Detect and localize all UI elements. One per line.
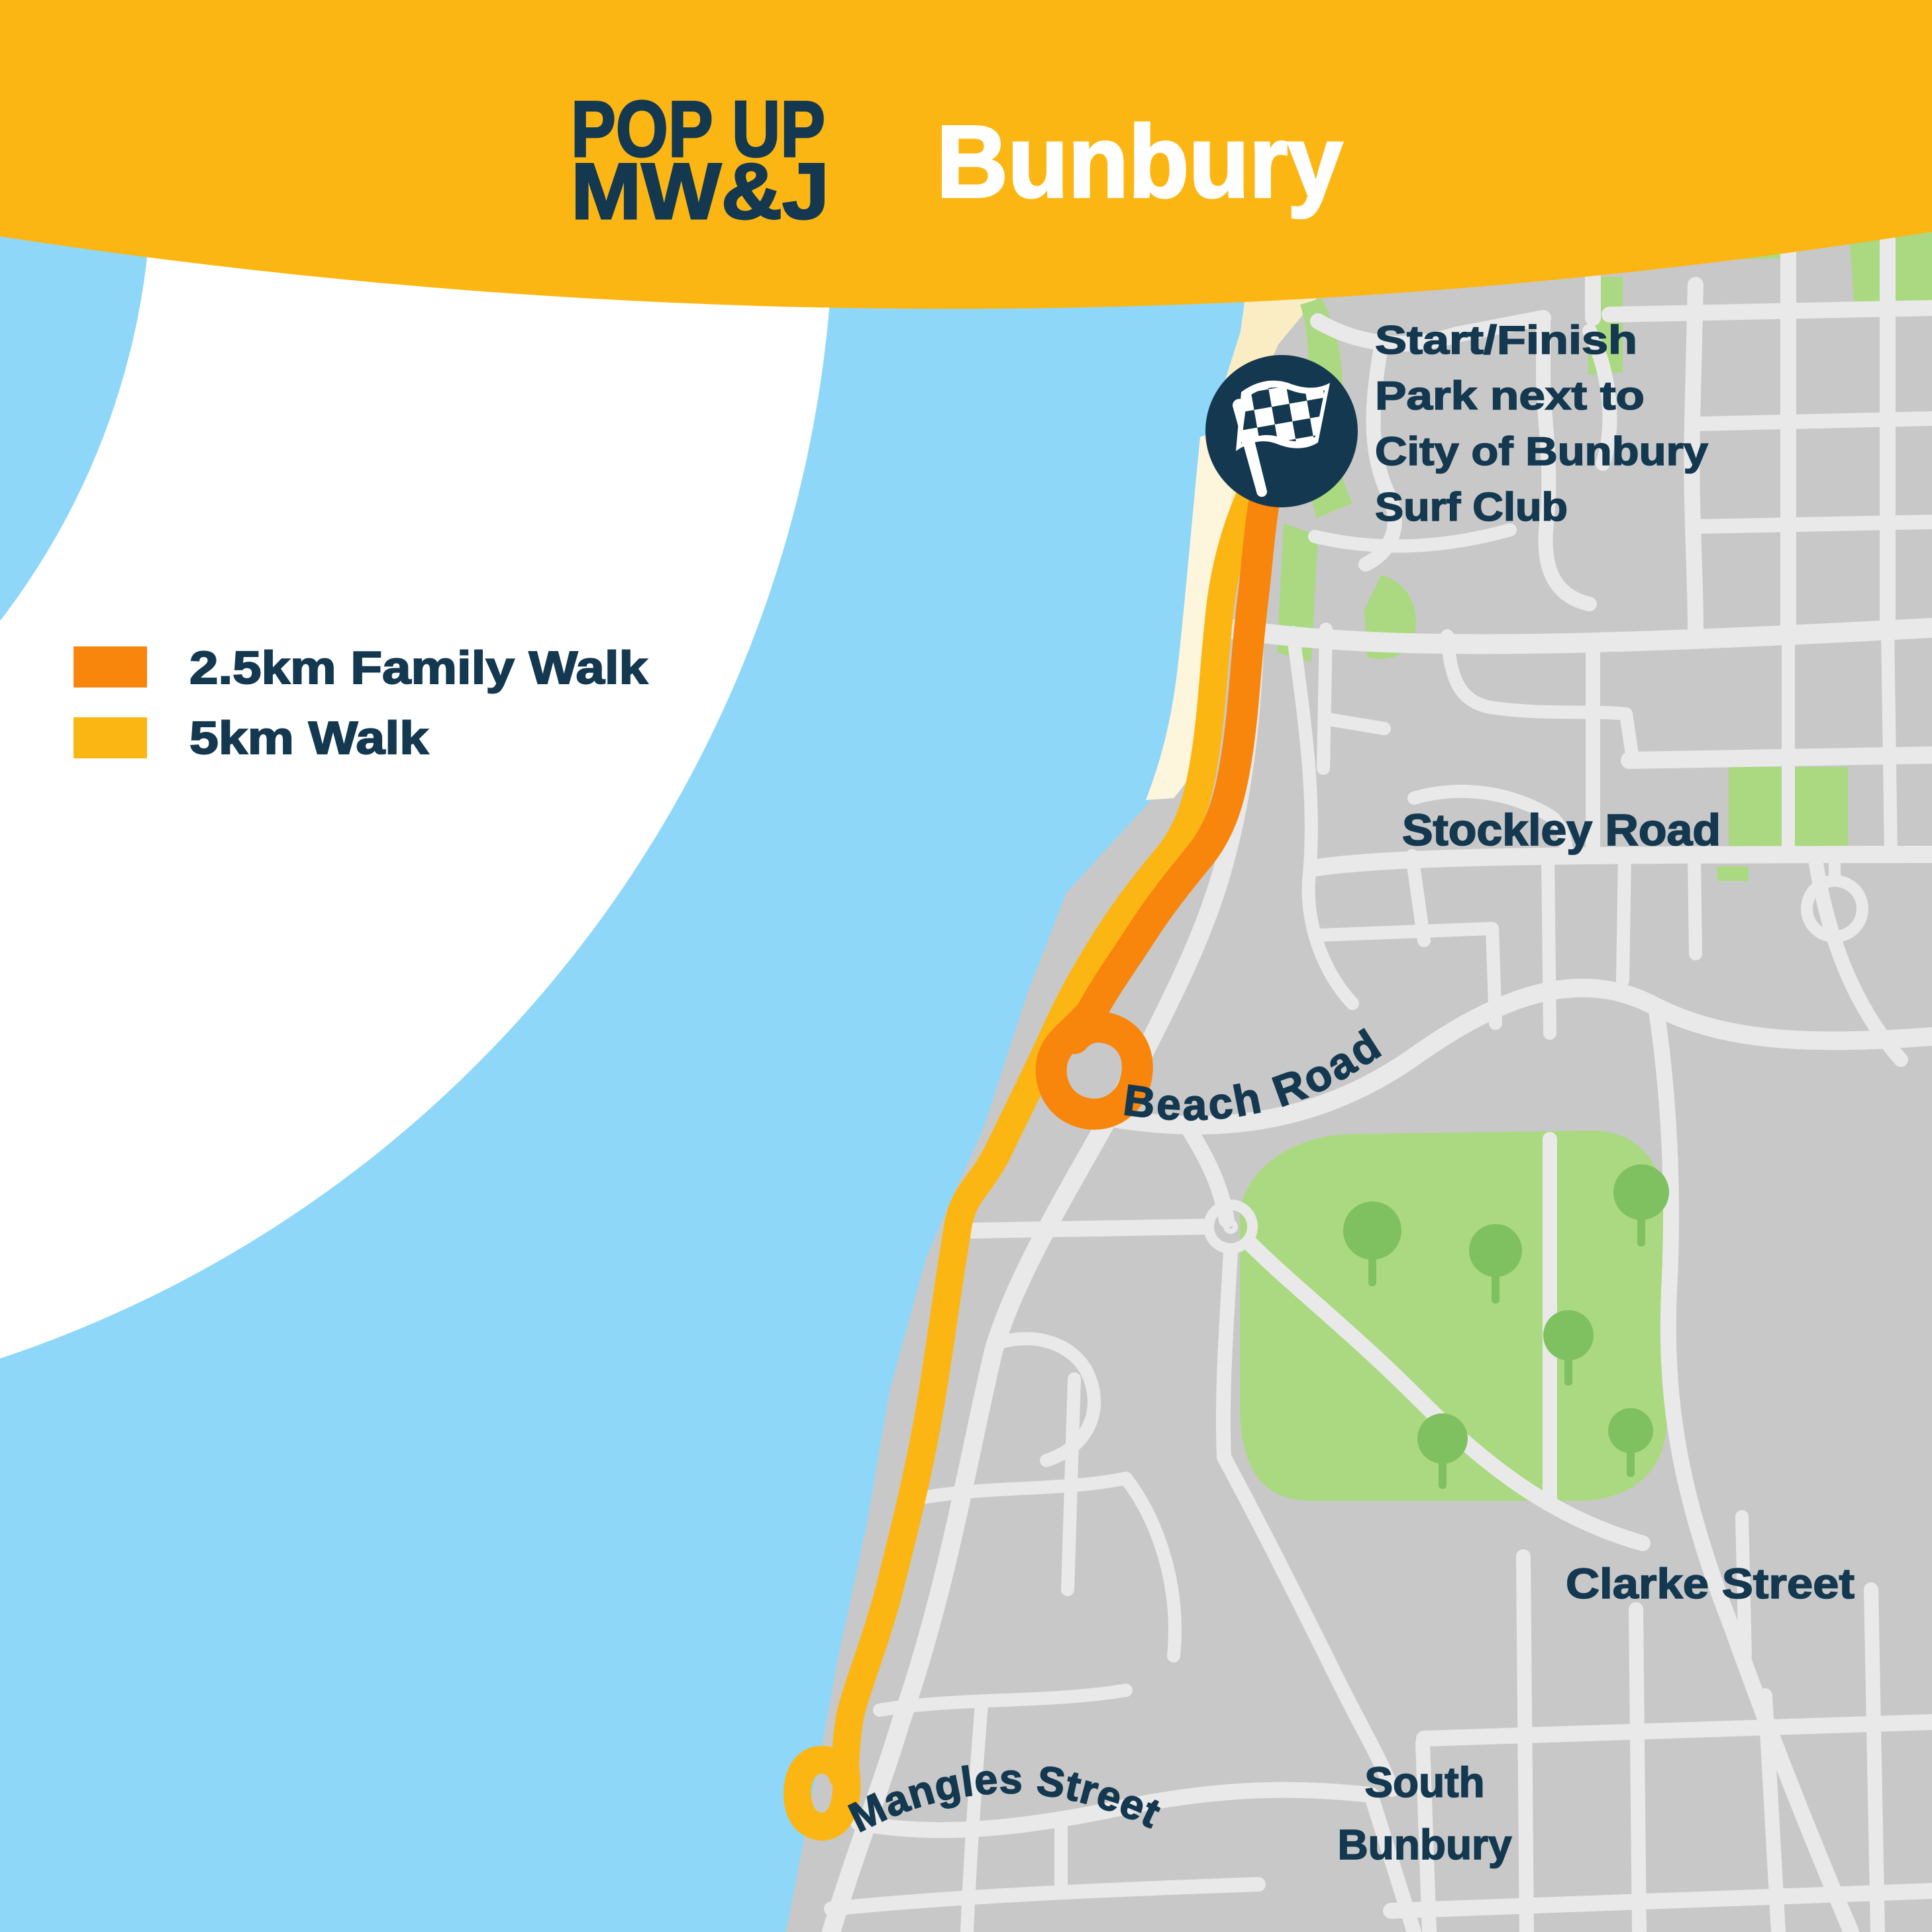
- svg-text:Surf Club: Surf Club: [1375, 485, 1568, 529]
- svg-text:Start/Finish: Start/Finish: [1375, 318, 1637, 362]
- svg-text:2.5km Family Walk: 2.5km Family Walk: [189, 642, 648, 693]
- svg-text:Clarke Street: Clarke Street: [1566, 1560, 1855, 1607]
- svg-text:Park next to: Park next to: [1375, 374, 1645, 418]
- svg-text:5km Walk: 5km Walk: [189, 712, 429, 764]
- svg-text:South: South: [1364, 1758, 1484, 1806]
- svg-text:MW&J: MW&J: [571, 147, 829, 236]
- svg-text:Stockley Road: Stockley Road: [1402, 805, 1721, 855]
- svg-text:Bunbury: Bunbury: [1337, 1821, 1512, 1868]
- svg-text:Bunbury: Bunbury: [937, 105, 1343, 219]
- svg-text:City of Bunbury: City of Bunbury: [1375, 429, 1709, 474]
